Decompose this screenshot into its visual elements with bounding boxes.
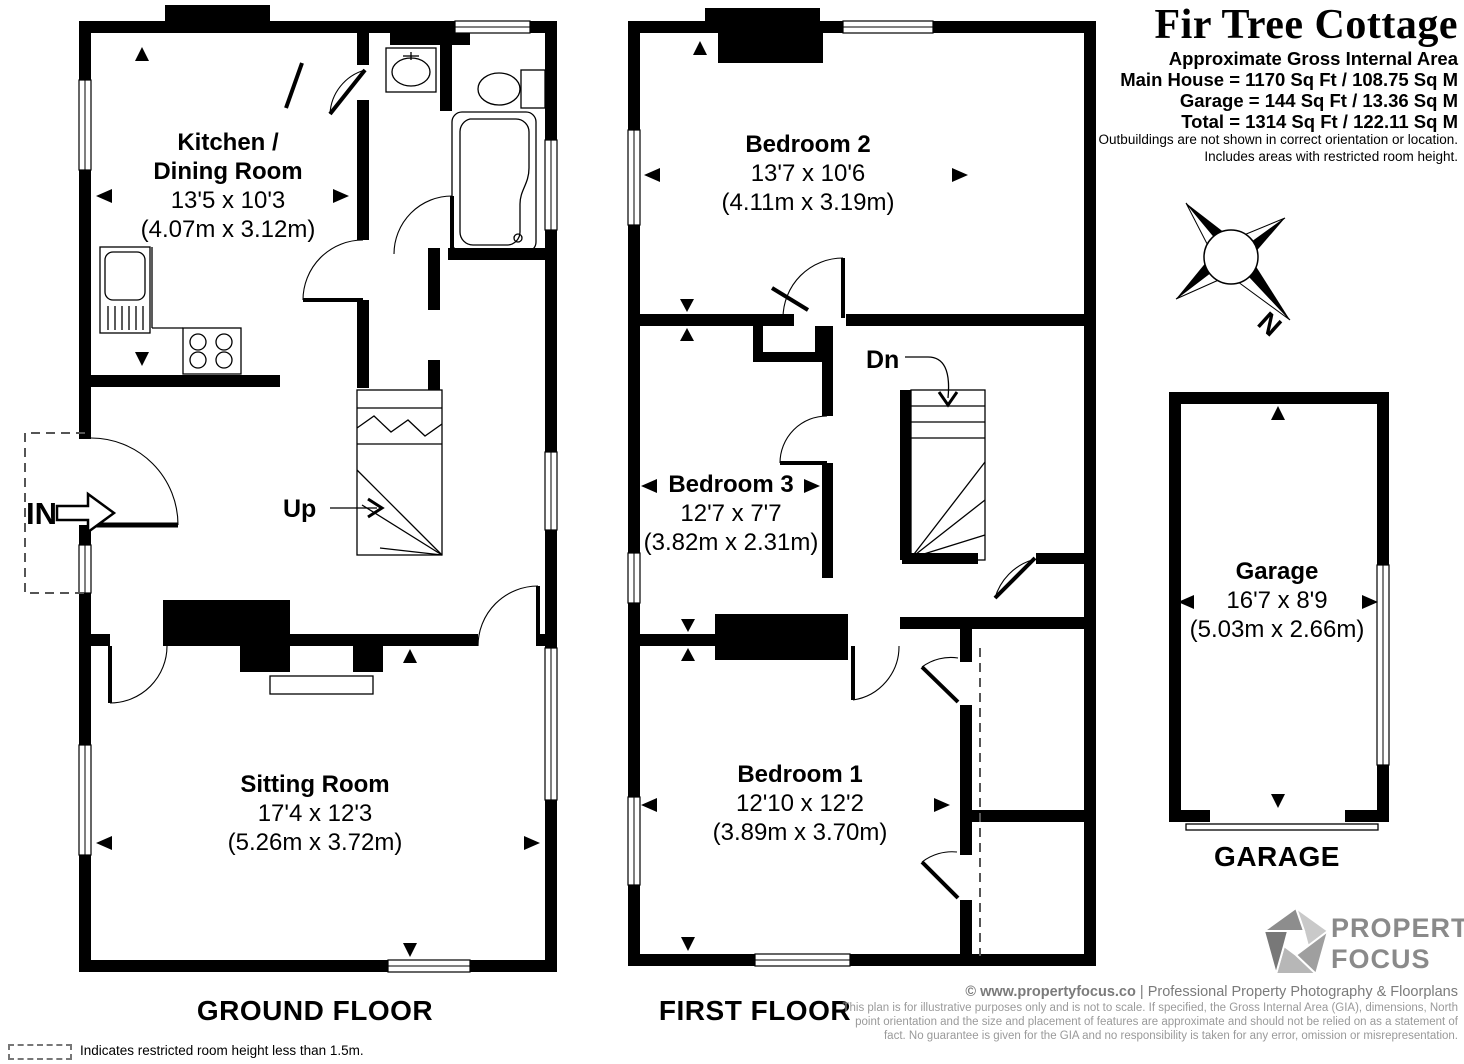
ff-stairs [911,390,985,560]
gf-interior-walls [85,33,551,646]
up-stairs-annotation [330,499,382,517]
disclaimer-line-1: This plan is for illustrative purposes o… [738,1001,1458,1015]
gf-bathroom-fixtures [386,48,545,252]
footer-credit-line: © www.propertyfocus.co | Professional Pr… [738,983,1458,1001]
garage-door-line [1186,824,1378,830]
room-label-bedroom3: Bedroom 3 12'7 x 7'7 (3.82m x 2.31m) [644,470,819,557]
disclaimer-line-2: point orientation and the size and place… [738,1015,1458,1029]
room-label-garage: Garage 16'7 x 8'9 (5.03m x 2.66m) [1190,557,1365,644]
gf-stairs [357,390,442,555]
room-label-sitting-room: Sitting Room 17'4 x 12'3 (5.26m x 3.72m) [228,770,403,857]
gf-chimneys [163,5,470,672]
gf-hearth [270,676,373,694]
restricted-height-legend-swatch [8,1044,72,1060]
gf-kitchen-fixtures [100,247,241,374]
garage-floor-label: GARAGE [1214,841,1340,873]
room-label-kitchen: Kitchen / Dining Room 13'5 x 10'3 (4.07m… [141,128,316,244]
footer: © www.propertyfocus.co | Professional Pr… [738,983,1458,1043]
ff-interior-walls [634,314,1090,960]
gia-subtitle: Approximate Gross Internal Area [738,48,1458,69]
dn-stairs-annotation [905,357,957,405]
entrance-label: IN [26,496,57,531]
hob-icon [183,328,241,374]
compass-rose-icon: N [1176,203,1290,342]
footer-separator: | [1140,984,1144,1000]
area-garage: Garage = 144 Sq Ft / 13.36 Sq M [738,90,1458,111]
garage-door-opening [1210,810,1345,822]
logo-text-property: PROPERTY [1331,913,1464,943]
bath-icon [452,112,536,252]
ground-floor-label: GROUND FLOOR [197,995,433,1027]
property-title: Fir Tree Cottage [738,2,1458,48]
footer-tagline: Professional Property Photography & Floo… [1148,984,1458,1000]
area-main-house: Main House = 1170 Sq Ft / 108.75 Sq M [738,69,1458,90]
area-total: Total = 1314 Sq Ft / 122.11 Sq M [738,111,1458,132]
garage-window [1377,565,1389,765]
up-label: Up [283,495,316,523]
toilet-icon [478,70,545,108]
disclaimer-line-3: fact. No guarantee is given for the GIA … [738,1029,1458,1043]
logo-text-focus: FOCUS [1331,944,1431,974]
room-label-bedroom1: Bedroom 1 12'10 x 12'2 (3.89m x 3.70m) [713,760,888,847]
dn-label: Dn [866,346,899,374]
logo-pentagon-icon [1264,908,1328,974]
footer-copyright: © www.propertyfocus.co [965,984,1135,1000]
room-label-bedroom2: Bedroom 2 13'7 x 10'6 (4.11m x 3.19m) [722,130,895,217]
restricted-height-legend-text: Indicates restricted room height less th… [80,1043,364,1058]
floorplan-page: IN Up [0,0,1464,1064]
